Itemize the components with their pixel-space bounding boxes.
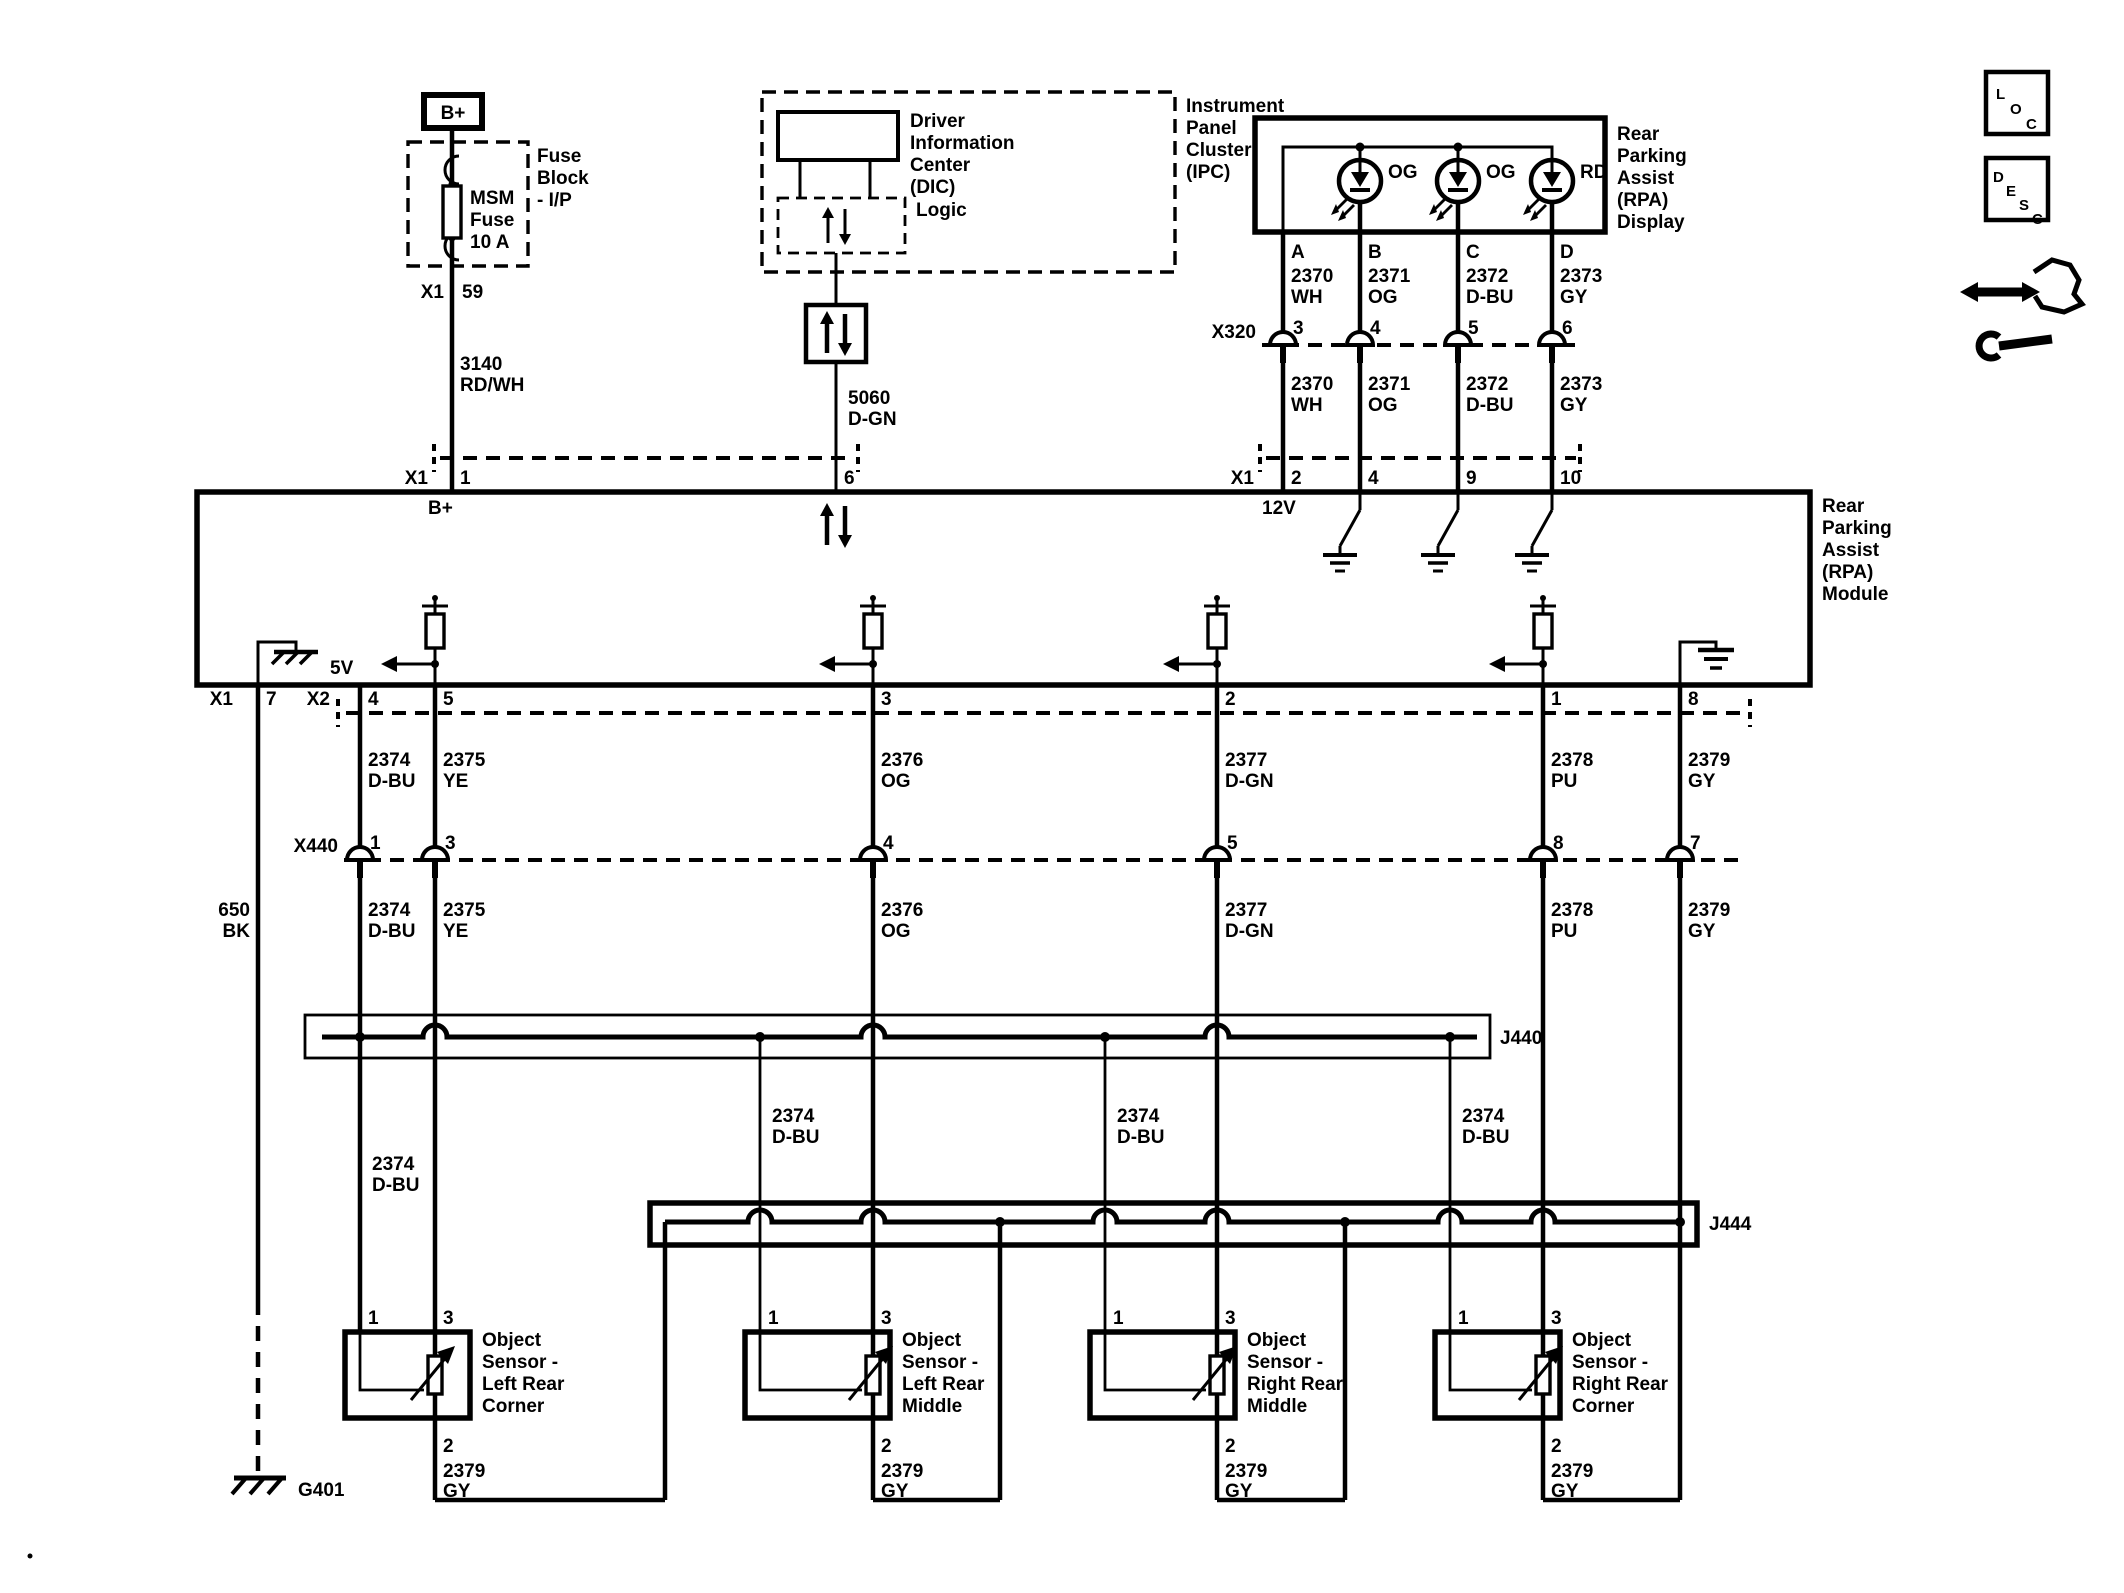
logic-box	[778, 198, 905, 253]
fuse-element	[443, 186, 461, 238]
svg-text:1: 1	[1113, 1308, 1124, 1329]
branch-wire-labels: 2374D-BU 2374D-BU 2374D-BU 2374D-BU	[372, 1106, 1510, 1196]
svg-text:PU: PU	[1551, 771, 1577, 792]
svg-text:BK: BK	[223, 921, 251, 942]
svg-text:2374: 2374	[372, 1154, 415, 1175]
svg-text:1: 1	[1458, 1308, 1469, 1329]
j444-label: J444	[1709, 1214, 1752, 1235]
svg-text:2372: 2372	[1466, 266, 1508, 287]
svg-text:GY: GY	[1560, 287, 1588, 308]
svg-text:D-GN: D-GN	[1225, 921, 1274, 942]
display-pin-c: C	[1466, 242, 1480, 263]
svg-text:Middle: Middle	[1247, 1396, 1307, 1417]
sensor-input-resistor-2	[819, 595, 886, 685]
svg-text:YE: YE	[443, 921, 468, 942]
svg-text:RD/WH: RD/WH	[460, 375, 524, 396]
sensor-input-resistor-1	[381, 595, 448, 685]
low-side-switch-2	[1421, 492, 1458, 571]
fuse-pin-label: 59	[462, 282, 483, 303]
svg-text:3: 3	[1551, 1308, 1562, 1329]
svg-text:2377: 2377	[1225, 900, 1267, 921]
svg-text:7: 7	[266, 689, 277, 710]
svg-text:3140: 3140	[460, 354, 502, 375]
svg-text:D-BU: D-BU	[368, 921, 416, 942]
display-wire-labels-lower: 2370WH 2371OG 2372D-BU 2373GY	[1291, 374, 1602, 416]
svg-text:10: 10	[1560, 468, 1581, 489]
desc-letter-e: E	[2006, 183, 2016, 200]
svg-text:YE: YE	[443, 771, 468, 792]
connector-x320: X320 3 4 5 6	[1212, 318, 1578, 363]
svg-text:D-BU: D-BU	[372, 1175, 420, 1196]
svg-text:(RPA): (RPA)	[1617, 190, 1668, 211]
svg-text:D-GN: D-GN	[1225, 771, 1274, 792]
svg-text:WH: WH	[1291, 287, 1323, 308]
svg-text:2373: 2373	[1560, 266, 1602, 287]
led2-color: OG	[1486, 162, 1516, 183]
svg-text:GY: GY	[1560, 395, 1588, 416]
low-side-switch-1	[1323, 492, 1360, 571]
svg-text:PU: PU	[1551, 921, 1577, 942]
svg-text:Left Rear: Left Rear	[902, 1374, 985, 1395]
svg-text:2: 2	[881, 1436, 892, 1457]
svg-text:650: 650	[218, 900, 250, 921]
serial-data-icon-module	[820, 503, 852, 548]
svg-text:9: 9	[1466, 468, 1477, 489]
svg-text:6: 6	[1562, 318, 1573, 339]
svg-text:2376: 2376	[881, 900, 923, 921]
loc-letter-l: L	[1996, 86, 2005, 103]
x2-label: X2	[307, 689, 330, 710]
svg-text:10 A: 10 A	[470, 232, 510, 253]
svg-text:WH: WH	[1291, 395, 1323, 416]
svg-text:4: 4	[883, 833, 894, 854]
svg-text:Right Rear: Right Rear	[1247, 1374, 1344, 1395]
module-label: Rear	[1822, 496, 1865, 517]
svg-text:Corner: Corner	[482, 1396, 545, 1417]
svg-text:Cluster: Cluster	[1186, 140, 1252, 161]
sensor-input-resistor-4	[1489, 595, 1556, 685]
module-internal-ground-left	[258, 642, 318, 685]
rpa-wiring-diagram: B+ MSM Fuse 10 A Fuse Block - I/P X1 59 …	[0, 0, 2124, 1593]
svg-text:Middle: Middle	[902, 1396, 962, 1417]
led3-color: RD	[1580, 162, 1607, 183]
loc-button[interactable]: L O C	[1986, 72, 2048, 134]
splice-j444	[650, 1203, 1697, 1245]
svg-text:2: 2	[1225, 1436, 1236, 1457]
desc-letter-s: S	[2019, 197, 2029, 214]
ground-g401: G401	[232, 1478, 345, 1501]
svg-text:5: 5	[443, 689, 454, 710]
desc-letter-c: C	[2032, 211, 2043, 228]
svg-text:2374: 2374	[368, 900, 411, 921]
led-indicator-2	[1429, 160, 1479, 221]
fuse-name: MSM	[470, 188, 514, 209]
svg-text:Sensor -: Sensor -	[482, 1352, 558, 1373]
svg-text:3: 3	[443, 1308, 454, 1329]
svg-text:Panel: Panel	[1186, 118, 1237, 139]
svg-text:2374: 2374	[1117, 1106, 1160, 1127]
svg-text:D-BU: D-BU	[368, 771, 416, 792]
svg-text:4: 4	[368, 689, 379, 710]
svg-text:2378: 2378	[1551, 900, 1593, 921]
module-12v-label: 12V	[1262, 498, 1296, 519]
module-bplus-label: B+	[428, 498, 453, 519]
svg-text:Object: Object	[1247, 1330, 1307, 1351]
svg-text:GY: GY	[1688, 921, 1716, 942]
splice-j440	[305, 1015, 1490, 1058]
fuse-block-label: Fuse	[537, 146, 581, 167]
svg-text:OG: OG	[881, 771, 911, 792]
svg-text:GY: GY	[1225, 1481, 1253, 1502]
svg-text:GY: GY	[881, 1481, 909, 1502]
svg-text:4: 4	[1370, 318, 1381, 339]
svg-text:D-BU: D-BU	[1117, 1127, 1165, 1148]
fuse-connector-label: X1	[421, 282, 445, 303]
object-sensor-right-rear-corner: 1 3 2 2379 GY Object Sensor - Right Rear…	[1435, 1308, 1669, 1502]
svg-text:Object: Object	[1572, 1330, 1632, 1351]
svg-text:1: 1	[370, 833, 381, 854]
battery-feed-symbol: B+	[424, 95, 482, 128]
svg-text:2379: 2379	[1225, 1461, 1267, 1482]
desc-letter-d: D	[1993, 169, 2004, 186]
ipc-label: Instrument	[1186, 96, 1285, 117]
x320-label: X320	[1212, 322, 1256, 343]
svg-text:Fuse: Fuse	[470, 210, 514, 231]
svg-text:2: 2	[1551, 1436, 1562, 1457]
led-indicator-1	[1331, 160, 1381, 221]
svg-text:2370: 2370	[1291, 374, 1333, 395]
svg-text:2374: 2374	[1462, 1106, 1505, 1127]
module-5v-label: 5V	[330, 658, 354, 679]
svg-text:2373: 2373	[1560, 374, 1602, 395]
svg-text:2: 2	[1291, 468, 1302, 489]
svg-text:5: 5	[1468, 318, 1479, 339]
fuse-block: MSM Fuse 10 A Fuse Block - I/P X1 59	[408, 142, 589, 303]
low-side-switch-3	[1515, 492, 1552, 571]
svg-text:6: 6	[844, 468, 855, 489]
svg-text:GY: GY	[1551, 1481, 1579, 1502]
x440-label: X440	[294, 836, 338, 857]
svg-text:1: 1	[460, 468, 471, 489]
module-internal-ground-right	[1680, 642, 1734, 685]
svg-text:Parking: Parking	[1617, 146, 1687, 167]
svg-text:D-BU: D-BU	[1462, 1127, 1510, 1148]
svg-text:Assist: Assist	[1617, 168, 1675, 189]
j440-label: J440	[1500, 1028, 1542, 1049]
object-sensor-left-rear-middle: 1 3 2 2379 GY Object Sensor - Left Rear …	[745, 1308, 985, 1502]
svg-text:Center: Center	[910, 155, 971, 176]
svg-text:2379: 2379	[1688, 750, 1730, 771]
display-wire-labels-upper: 2370WH 2371OG 2372D-BU 2373GY	[1291, 266, 1602, 308]
svg-text:OG: OG	[1368, 395, 1398, 416]
svg-text:3: 3	[1293, 318, 1304, 339]
svg-text:Object: Object	[902, 1330, 962, 1351]
svg-text:Parking: Parking	[1822, 518, 1892, 539]
svg-text:3: 3	[1225, 1308, 1236, 1329]
display-label: Rear	[1617, 124, 1660, 145]
wire-labels-row-b: 650 BK 2374D-BU 2375YE 2376OG 2377D-GN 2…	[218, 900, 1730, 942]
svg-text:5: 5	[1227, 833, 1238, 854]
svg-text:2: 2	[1225, 689, 1236, 710]
svg-text:1: 1	[768, 1308, 779, 1329]
wire-5060-label: 5060 D-GN	[848, 388, 897, 430]
svg-text:1: 1	[368, 1308, 379, 1329]
display-pin-b: B	[1368, 242, 1382, 263]
serial-data-icon-logic	[822, 207, 851, 245]
svg-text:Corner: Corner	[1572, 1396, 1635, 1417]
led1-color: OG	[1388, 162, 1418, 183]
connector-x1-left: X1 1 6	[405, 444, 858, 489]
svg-text:2378: 2378	[1551, 750, 1593, 771]
x1-right-label: X1	[1231, 468, 1255, 489]
display-pin-a: A	[1291, 242, 1305, 263]
svg-text:Sensor -: Sensor -	[1572, 1352, 1648, 1373]
svg-text:2379: 2379	[1551, 1461, 1593, 1482]
instrument-panel-cluster: Driver Information Center (DIC) Logic In…	[762, 92, 1285, 272]
svg-text:Display: Display	[1617, 212, 1685, 233]
dic-label: Driver	[910, 111, 966, 132]
pan-wrench-icon[interactable]	[1960, 260, 2082, 358]
svg-text:1: 1	[1551, 689, 1562, 710]
svg-text:Assist: Assist	[1822, 540, 1880, 561]
loc-letter-o: O	[2010, 101, 2022, 118]
svg-text:2379: 2379	[1688, 900, 1730, 921]
svg-text:2370: 2370	[1291, 266, 1333, 287]
b-plus-label: B+	[441, 103, 466, 124]
svg-text:3: 3	[881, 1308, 892, 1329]
svg-text:8: 8	[1688, 689, 1699, 710]
svg-text:GY: GY	[443, 1481, 471, 1502]
svg-text:OG: OG	[881, 921, 911, 942]
svg-text:(DIC): (DIC)	[910, 177, 955, 198]
object-sensor-left-rear-corner: 1 3 2 2379 GY Object Sensor - Left Rear …	[345, 1308, 565, 1502]
svg-text:2372: 2372	[1466, 374, 1508, 395]
svg-text:3: 3	[445, 833, 456, 854]
svg-text:Information: Information	[910, 133, 1015, 154]
loc-letter-c: C	[2026, 116, 2037, 133]
x1-gnd-label: X1	[210, 689, 234, 710]
svg-text:(IPC): (IPC)	[1186, 162, 1230, 183]
wire-labels-row-a: 2374D-BU 2375YE 2376OG 2377D-GN 2378PU 2…	[368, 750, 1730, 792]
sensor-input-resistor-3	[1163, 595, 1230, 685]
svg-text:2379: 2379	[443, 1461, 485, 1482]
svg-text:D-BU: D-BU	[772, 1127, 820, 1148]
svg-text:Sensor -: Sensor -	[1247, 1352, 1323, 1373]
logic-label: Logic	[916, 200, 967, 221]
svg-text:Block: Block	[537, 168, 589, 189]
svg-text:Sensor -: Sensor -	[902, 1352, 978, 1373]
serial-data-connector-symbol	[806, 305, 866, 362]
svg-text:2375: 2375	[443, 750, 486, 771]
svg-text:- I/P: - I/P	[537, 190, 572, 211]
svg-text:GY: GY	[1688, 771, 1716, 792]
svg-text:Left Rear: Left Rear	[482, 1374, 565, 1395]
rpa-module: Rear Parking Assist (RPA) Module B+ 12V …	[197, 492, 1892, 685]
svg-text:2376: 2376	[881, 750, 923, 771]
svg-text:2375: 2375	[443, 900, 486, 921]
svg-text:2374: 2374	[772, 1106, 815, 1127]
svg-text:Right Rear: Right Rear	[1572, 1374, 1669, 1395]
rpa-display: OG OG RD Rear Parking Assist (RPA) Displ…	[1255, 118, 1687, 263]
svg-text:2371: 2371	[1368, 266, 1411, 287]
svg-text:7: 7	[1690, 833, 1701, 854]
wiring-diagram-page: B+ MSM Fuse 10 A Fuse Block - I/P X1 59 …	[0, 0, 2124, 1593]
connector-x2: X1 7 X2 4 5 3 2 1 8	[210, 689, 1750, 727]
svg-text:D-BU: D-BU	[1466, 395, 1514, 416]
svg-text:2374: 2374	[368, 750, 411, 771]
svg-text:(RPA): (RPA)	[1822, 562, 1873, 583]
led-indicator-3	[1523, 160, 1573, 221]
svg-text:8: 8	[1553, 833, 1564, 854]
svg-text:4: 4	[1368, 468, 1379, 489]
svg-text:2379: 2379	[881, 1461, 923, 1482]
connector-x440: X440 1 3 4 5 8 7	[294, 833, 1740, 878]
display-pin-d: D	[1560, 242, 1574, 263]
svg-text:2377: 2377	[1225, 750, 1267, 771]
svg-text:OG: OG	[1368, 287, 1398, 308]
x1-left-label: X1	[405, 468, 429, 489]
svg-text:D-BU: D-BU	[1466, 287, 1514, 308]
svg-text:3: 3	[881, 689, 892, 710]
svg-text:Module: Module	[1822, 584, 1889, 605]
desc-button[interactable]: D E S C	[1986, 158, 2048, 228]
svg-text:2371: 2371	[1368, 374, 1411, 395]
page-artifact-dot	[28, 1554, 33, 1559]
g401-label: G401	[298, 1480, 345, 1501]
svg-text:5060: 5060	[848, 388, 890, 409]
svg-text:Object: Object	[482, 1330, 542, 1351]
svg-text:2: 2	[443, 1436, 454, 1457]
svg-text:D-GN: D-GN	[848, 409, 897, 430]
wire-3140-label: 3140 RD/WH	[460, 354, 524, 396]
